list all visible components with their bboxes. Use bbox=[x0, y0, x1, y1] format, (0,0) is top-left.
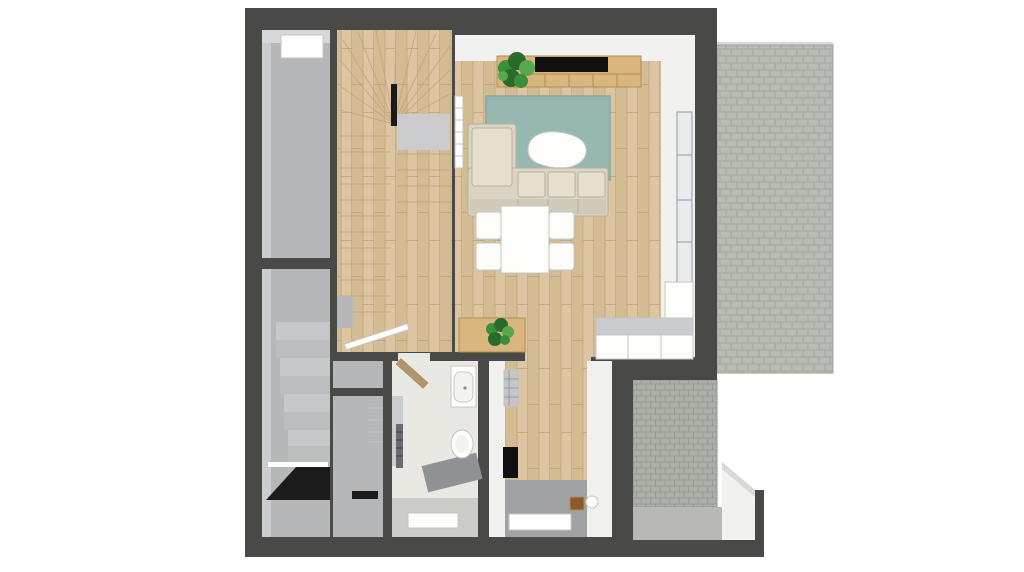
toilet[interactable] bbox=[451, 430, 473, 458]
dining-table[interactable] bbox=[501, 206, 549, 273]
kitchen-cabinet-fronts bbox=[596, 335, 693, 359]
wooden-stool[interactable] bbox=[570, 497, 584, 510]
stair-step bbox=[288, 446, 330, 462]
left-corridor-upper bbox=[262, 30, 330, 258]
coffee-table[interactable] bbox=[528, 132, 586, 169]
dining-chair[interactable] bbox=[476, 212, 501, 239]
glass-door-pane bbox=[677, 112, 692, 284]
doormat[interactable] bbox=[509, 514, 571, 530]
left-corridor-lower bbox=[262, 269, 330, 537]
dining-chair[interactable] bbox=[549, 212, 574, 239]
washbasin[interactable] bbox=[451, 366, 476, 407]
towel-radiator[interactable] bbox=[396, 424, 403, 468]
dining-chair[interactable] bbox=[476, 243, 501, 270]
patio-paving bbox=[633, 380, 717, 507]
floor-plan-stage bbox=[0, 0, 1024, 572]
closet-divider-wall bbox=[333, 388, 383, 396]
hall-cabinet[interactable] bbox=[337, 296, 353, 328]
stair-newel-wall bbox=[391, 84, 397, 126]
sofa-seat-cushion bbox=[548, 172, 575, 197]
garden-wall-white bbox=[722, 462, 755, 540]
storage-closet bbox=[333, 361, 383, 537]
stair-landing bbox=[397, 114, 450, 150]
kitchen-tall-cabinet[interactable] bbox=[665, 282, 693, 318]
stair-step bbox=[284, 394, 330, 412]
stair-step bbox=[276, 340, 330, 358]
plant-leaf bbox=[500, 335, 510, 345]
waste-bin[interactable] bbox=[586, 496, 598, 508]
washbasin-bowl bbox=[454, 372, 473, 402]
plant-leaf bbox=[488, 332, 502, 346]
skylight bbox=[281, 35, 323, 58]
passage-left-wall-face bbox=[489, 361, 505, 537]
stair-step bbox=[280, 376, 330, 394]
closet-dark-notch bbox=[352, 491, 378, 499]
bathroom bbox=[392, 353, 483, 537]
toilet-seat bbox=[455, 435, 469, 453]
plant-leaf bbox=[498, 71, 508, 81]
patio-bottom-wall bbox=[633, 540, 764, 557]
sofa-seat-cushion bbox=[578, 172, 605, 197]
corridor-upper-floor bbox=[262, 30, 330, 258]
cooktop[interactable] bbox=[503, 447, 518, 478]
wall-radiator[interactable] bbox=[455, 96, 463, 168]
plant-leaf bbox=[519, 60, 535, 76]
dining-set bbox=[476, 206, 574, 273]
stair-step bbox=[284, 412, 330, 430]
staircase-hall bbox=[337, 30, 452, 352]
washbasin-faucet bbox=[463, 386, 466, 389]
kitchen-countertop bbox=[596, 318, 693, 335]
corridor-upper-wall-face bbox=[262, 30, 271, 258]
terrace-paving bbox=[717, 45, 833, 373]
tv[interactable] bbox=[535, 57, 608, 72]
kitchen-counter[interactable] bbox=[596, 318, 693, 359]
floor-plan-canvas bbox=[0, 0, 1024, 572]
plant-leaf bbox=[514, 74, 528, 88]
closet-floor bbox=[333, 361, 383, 537]
passage-right-wall-face bbox=[587, 361, 612, 537]
kitchenette-sink[interactable] bbox=[504, 370, 519, 406]
stair-nosing-highlight bbox=[268, 462, 328, 467]
hall-wood-floor bbox=[337, 30, 452, 352]
stair-step bbox=[288, 430, 330, 446]
towel-radiator-body bbox=[396, 424, 403, 468]
dining-chair[interactable] bbox=[549, 243, 574, 270]
stair-step bbox=[280, 358, 330, 376]
glass-terrace-door[interactable] bbox=[677, 112, 692, 284]
stair-step bbox=[276, 322, 330, 340]
sofa-seat-cushion bbox=[518, 172, 545, 197]
kitchen-passage bbox=[489, 361, 612, 537]
sofa-chaise-cushion bbox=[472, 128, 512, 186]
bath-mat[interactable] bbox=[408, 513, 458, 528]
living-dining-room bbox=[449, 35, 717, 380]
